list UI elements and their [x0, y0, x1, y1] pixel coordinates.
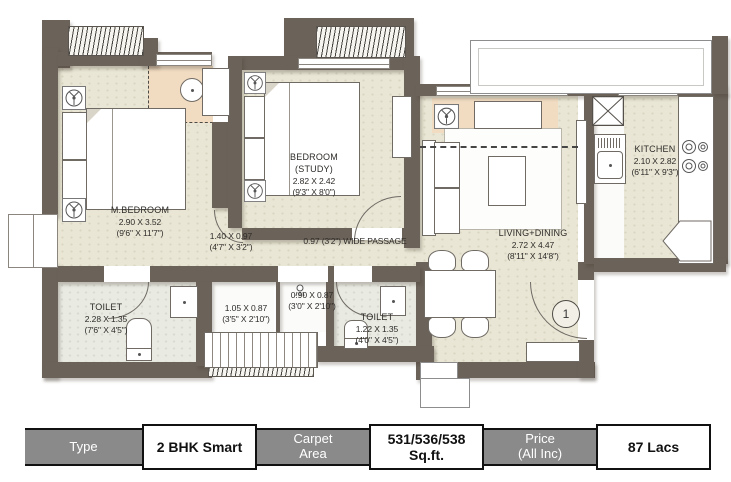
- room-dim-m: 2.82 X 2.42: [254, 176, 374, 187]
- kitchen-sliding-door: [576, 120, 587, 204]
- entrance-step: [420, 362, 458, 379]
- room-name: BEDROOM: [254, 152, 374, 164]
- dining-chair: [461, 316, 489, 338]
- wall-kitchen-right: [712, 92, 728, 264]
- toilet1-wc-tank: [126, 348, 152, 361]
- room-dim-ft: (9'6" X 11'7"): [82, 228, 198, 239]
- living-dining-label: LIVING+DINING 2.72 X 4.47 (8'11" X 14'8"…: [458, 228, 608, 262]
- room-dim-ft: (8'11" X 14'8"): [458, 251, 608, 262]
- room-dim-ft: (6'11" X 9'3"): [600, 167, 710, 178]
- dining-chair: [428, 316, 456, 338]
- room-dim-ft: (3'5" X 2'10"): [200, 314, 292, 325]
- foyer-label: 1.40 X 0.97 (4'7" X 3'2"): [194, 231, 268, 253]
- master-bed: [86, 108, 186, 210]
- table-header-price: Price (All Inc): [484, 428, 596, 466]
- wall-mbed-study-divider: [212, 122, 228, 208]
- room-dim-m: 2.72 X 4.47: [458, 240, 608, 251]
- center-table: [488, 156, 526, 206]
- wall-deck-right-post: [712, 36, 728, 94]
- room-dim-m: 1.40 X 0.97: [194, 231, 268, 242]
- room-dim-ft: (4'7" X 3'2"): [194, 242, 268, 253]
- room-name: M.BEDROOM: [82, 205, 198, 217]
- tv-unit: [474, 101, 542, 129]
- unit-info-table: Type 2 BHK Smart Carpet Area 531/536/538…: [25, 424, 711, 470]
- passage-label: 0.97 (3'2") WIDE PASSAGE: [288, 236, 422, 247]
- m-bedroom-label: M.BEDROOM 2.90 X 3.52 (9'6" X 11'7"): [82, 205, 198, 239]
- study-bedroom-label: BEDROOM (STUDY) 2.82 X 2.42 (9'3" X 8'0"…: [254, 152, 374, 198]
- toilet2-label: TOILET 1.22 X 1.35 (4'0" X 4'5"): [336, 312, 418, 346]
- room-name: LIVING+DINING: [458, 228, 608, 240]
- wall-bottom-left: [42, 362, 212, 378]
- room-dim-ft: (3'0" X 2'10"): [266, 301, 358, 312]
- wall-bottom-mid: [316, 346, 434, 362]
- ac-ledge-study: [316, 26, 406, 58]
- room-dim-m: 2.28 X 1.35: [60, 314, 152, 325]
- room-dim-ft: (4'0" X 4'5"): [336, 335, 418, 346]
- room-dim-m: 1.22 X 1.35: [336, 324, 418, 335]
- door-gap-shower: [278, 266, 328, 282]
- wall-left-upper: [42, 48, 58, 216]
- table-value-type: 2 BHK Smart: [142, 424, 257, 470]
- dressing-chair: [180, 78, 204, 102]
- toilet1-washbasin: [170, 286, 198, 318]
- ceiling-fan-icon: [434, 104, 459, 129]
- shoe-cabinet: [526, 342, 580, 362]
- table-header-type: Type: [25, 428, 142, 466]
- living-dining-dashed-divider: [420, 146, 578, 148]
- duct-cross-icon: [592, 96, 624, 126]
- kitchen-corner-counter: [662, 220, 712, 262]
- sofa-cushion: [434, 188, 460, 234]
- room-dim-ft: (7'6" X 4'5"): [60, 325, 152, 336]
- mbed-headboard-panel: [62, 112, 88, 160]
- shower-lobby-label: 0.90 X 0.87 (3'0" X 2'10"): [266, 290, 358, 312]
- table-value-price: 87 Lacs: [596, 424, 711, 470]
- room-name: TOILET: [60, 302, 152, 314]
- dresser-counter: [204, 332, 318, 368]
- entrance-landing-outline: [420, 378, 470, 408]
- room-name: KITCHEN: [600, 144, 710, 156]
- ceiling-fan-icon: [62, 86, 86, 110]
- toilet1-label: TOILET 2.28 X 1.35 (7'6" X 4'5"): [60, 302, 152, 336]
- room-dim-m: 2.90 X 3.52: [82, 217, 198, 228]
- wall-living-bottom: [455, 362, 595, 378]
- study-headboard-panel: [244, 96, 266, 138]
- table-header-carpet-area: Carpet Area: [257, 428, 369, 466]
- ac-ledge-left: [68, 26, 144, 56]
- window-mbed-top: [156, 54, 212, 66]
- room-name: TOILET: [336, 312, 418, 324]
- study-wardrobe: [392, 96, 412, 158]
- deck-inner-line: [478, 48, 704, 86]
- kitchen-label: KITCHEN 2.10 X 2.82 (6'11" X 9'3"): [600, 144, 710, 178]
- sofa-cushion: [434, 142, 460, 188]
- ceiling-fan-icon: [244, 72, 266, 94]
- entrance-number-marker: 1: [552, 300, 580, 328]
- room-dim-ft: (9'3" X 8'0"): [254, 187, 374, 198]
- dining-chair: [428, 250, 456, 272]
- wall-left-lower: [42, 262, 58, 378]
- floor-plan-page: 1 M.BEDROOM 2.90 X 3.52 (9'6" X 11'7") B…: [0, 0, 731, 482]
- door-gap-toilet1: [104, 266, 150, 282]
- room-name2: (STUDY): [254, 164, 374, 176]
- dressing-desk: [202, 68, 230, 116]
- window-study-top: [298, 58, 390, 69]
- room-dim-m: 0.90 X 0.87: [266, 290, 358, 301]
- room-dim-m: 2.10 X 2.82: [600, 156, 710, 167]
- window-mbed-left: [8, 214, 58, 268]
- wall-study-left: [228, 56, 242, 228]
- door-gap-toilet2: [334, 266, 372, 282]
- dining-table: [424, 270, 496, 318]
- table-value-carpet-area: 531/536/538 Sq.ft.: [369, 424, 484, 470]
